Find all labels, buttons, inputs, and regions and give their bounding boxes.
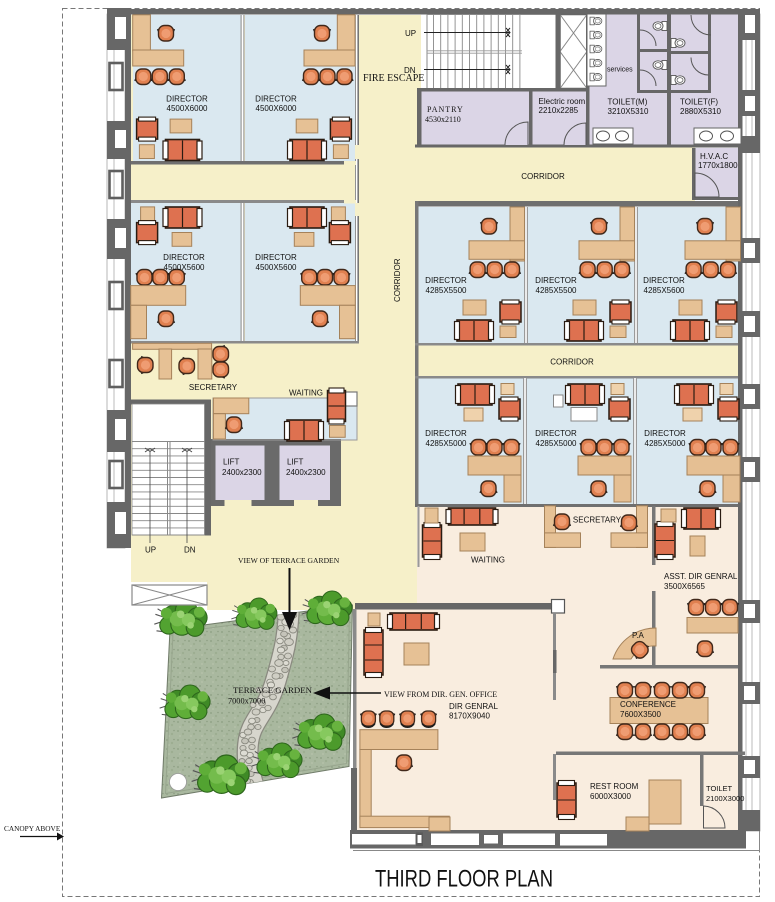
svg-text:SECRETARY: SECRETARY <box>573 516 622 525</box>
svg-text:TOILET(M): TOILET(M) <box>608 98 648 107</box>
svg-text:DIRECTOR: DIRECTOR <box>425 276 467 285</box>
svg-text:2400x2300: 2400x2300 <box>286 468 326 477</box>
svg-text:CORRIDOR: CORRIDOR <box>393 258 402 302</box>
svg-text:DN: DN <box>184 546 196 555</box>
svg-text:4500X6000: 4500X6000 <box>167 104 208 113</box>
svg-text:3210X5310: 3210X5310 <box>608 107 649 116</box>
svg-text:4285X5500: 4285X5500 <box>536 286 577 295</box>
svg-text:3500X6565: 3500X6565 <box>664 582 705 591</box>
svg-text:DIRECTOR: DIRECTOR <box>255 253 297 262</box>
svg-text:ASST. DIR GENRAL: ASST. DIR GENRAL <box>664 572 738 581</box>
svg-text:1770x1800: 1770x1800 <box>698 161 738 170</box>
svg-text:FIRE ESCAPE: FIRE ESCAPE <box>363 73 424 84</box>
svg-text:DIRECTOR: DIRECTOR <box>163 253 205 262</box>
svg-text:DIRECTOR: DIRECTOR <box>425 429 467 438</box>
svg-text:4285X5000: 4285X5000 <box>426 439 467 448</box>
svg-text:LIFT: LIFT <box>287 458 304 467</box>
svg-text:CORRIDOR: CORRIDOR <box>550 358 594 367</box>
svg-text:DIR GENRAL: DIR GENRAL <box>449 702 498 711</box>
svg-text:VIEW OF TERRACE GARDEN: VIEW OF TERRACE GARDEN <box>238 556 340 565</box>
svg-text:2400x2300: 2400x2300 <box>222 468 262 477</box>
svg-text:8170X9040: 8170X9040 <box>449 712 490 721</box>
svg-text:TOILET: TOILET <box>706 784 733 793</box>
svg-text:7600X3500: 7600X3500 <box>620 710 661 719</box>
svg-text:2210x2285: 2210x2285 <box>539 106 579 115</box>
svg-text:P.A: P.A <box>632 631 645 640</box>
svg-text:UP: UP <box>405 29 416 38</box>
svg-text:TERRACE GARDEN: TERRACE GARDEN <box>233 685 313 695</box>
svg-text:REST ROOM: REST ROOM <box>590 782 639 791</box>
svg-text:4285X5000: 4285X5000 <box>645 439 686 448</box>
svg-text:4285X5600: 4285X5600 <box>644 286 685 295</box>
svg-text:4500X5600: 4500X5600 <box>164 263 205 272</box>
svg-text:DIRECTOR: DIRECTOR <box>535 429 577 438</box>
svg-text:PANTRY: PANTRY <box>427 105 464 114</box>
svg-text:SECRETARY: SECRETARY <box>189 383 238 392</box>
svg-text:services: services <box>607 67 633 74</box>
svg-text:VIEW FROM DIR. GEN. OFFICE: VIEW FROM DIR. GEN. OFFICE <box>384 690 497 699</box>
svg-text:DIRECTOR: DIRECTOR <box>644 429 686 438</box>
svg-text:Electric room: Electric room <box>539 97 586 106</box>
svg-text:4500X6000: 4500X6000 <box>256 104 297 113</box>
svg-text:4285X5000: 4285X5000 <box>536 439 577 448</box>
svg-text:H.V.A.C: H.V.A.C <box>700 152 728 161</box>
svg-text:LIFT: LIFT <box>223 458 240 467</box>
svg-text:DIRECTOR: DIRECTOR <box>643 276 685 285</box>
svg-text:TOILET(F): TOILET(F) <box>680 98 718 107</box>
svg-text:2880X5310: 2880X5310 <box>680 107 721 116</box>
svg-text:6000X3000: 6000X3000 <box>590 792 631 801</box>
svg-text:UP: UP <box>145 546 156 555</box>
svg-text:THIRD FLOOR PLAN: THIRD FLOOR PLAN <box>375 866 553 893</box>
svg-text:DIRECTOR: DIRECTOR <box>166 95 208 104</box>
svg-text:WAITING: WAITING <box>471 556 505 565</box>
svg-text:WAITING: WAITING <box>289 389 323 398</box>
svg-text:4500X5600: 4500X5600 <box>256 263 297 272</box>
svg-text:CANOPY ABOVE: CANOPY ABOVE <box>4 824 61 833</box>
svg-text:4530x2110: 4530x2110 <box>425 115 461 124</box>
svg-text:DIRECTOR: DIRECTOR <box>255 95 297 104</box>
svg-text:4285X5500: 4285X5500 <box>426 286 467 295</box>
svg-text:7000x7000: 7000x7000 <box>228 697 265 706</box>
svg-text:2100X3000: 2100X3000 <box>706 794 744 803</box>
svg-text:CORRIDOR: CORRIDOR <box>521 172 565 181</box>
svg-text:DIRECTOR: DIRECTOR <box>535 276 577 285</box>
svg-text:CONFERENCE: CONFERENCE <box>620 700 676 709</box>
